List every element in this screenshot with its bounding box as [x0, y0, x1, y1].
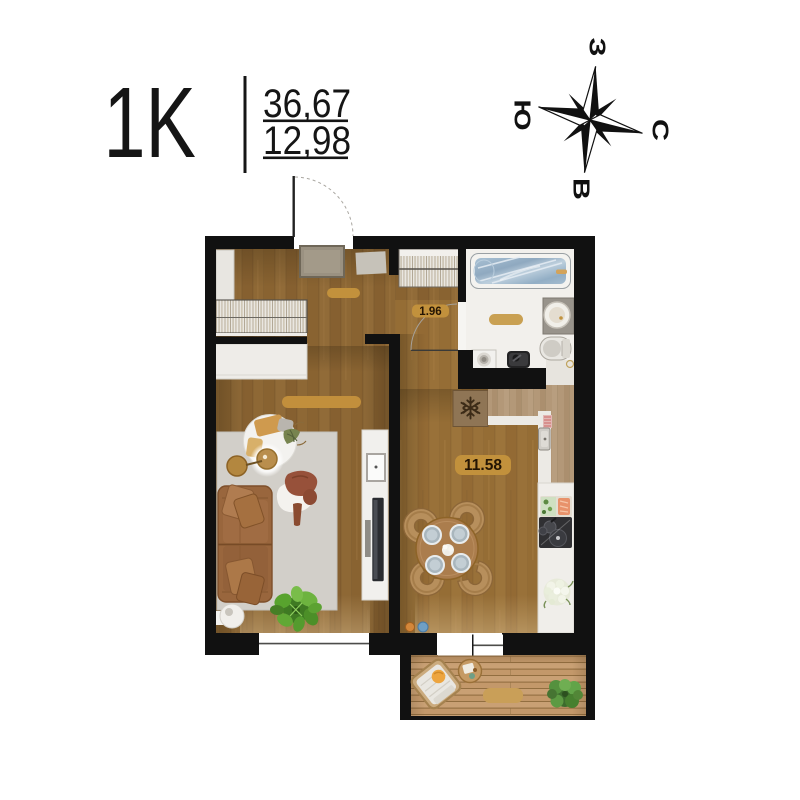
svg-text:В: В [568, 178, 594, 200]
svg-text:С: С [647, 119, 673, 141]
svg-text:1.96: 1.96 [419, 306, 441, 318]
svg-text:Ю: Ю [509, 99, 535, 130]
svg-text:З: З [584, 37, 610, 56]
svg-text:11.58: 11.58 [464, 457, 502, 474]
svg-text:12,98: 12,98 [263, 118, 351, 163]
svg-text:1K: 1K [104, 67, 196, 179]
